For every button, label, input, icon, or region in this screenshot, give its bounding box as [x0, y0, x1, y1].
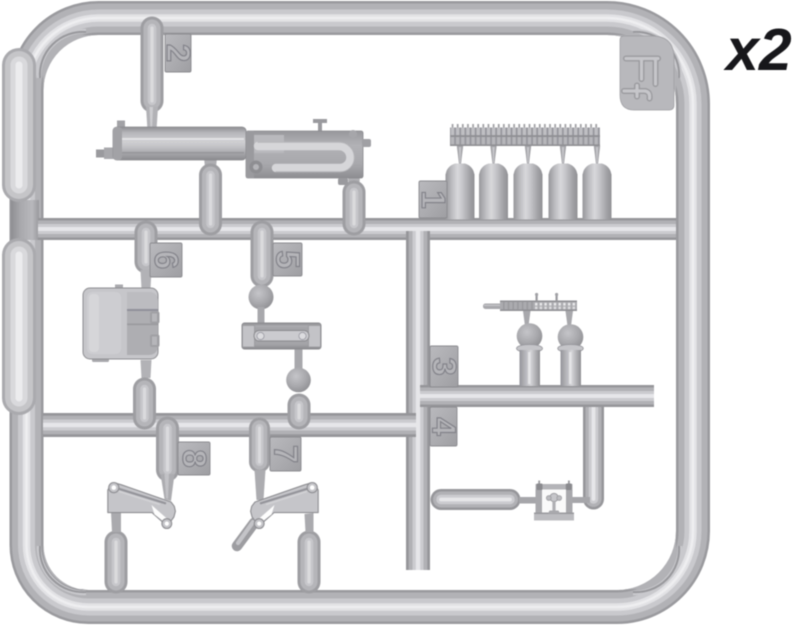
svg-text:3: 3 — [426, 357, 463, 375]
svg-text:6: 6 — [148, 251, 185, 269]
svg-text:5: 5 — [270, 250, 307, 268]
svg-text:1: 1 — [415, 190, 452, 208]
svg-text:2: 2 — [160, 44, 197, 62]
svg-text:x2: x2 — [723, 17, 792, 83]
svg-text:8: 8 — [176, 449, 213, 467]
svg-text:7: 7 — [268, 445, 305, 463]
svg-text:4: 4 — [426, 417, 463, 436]
